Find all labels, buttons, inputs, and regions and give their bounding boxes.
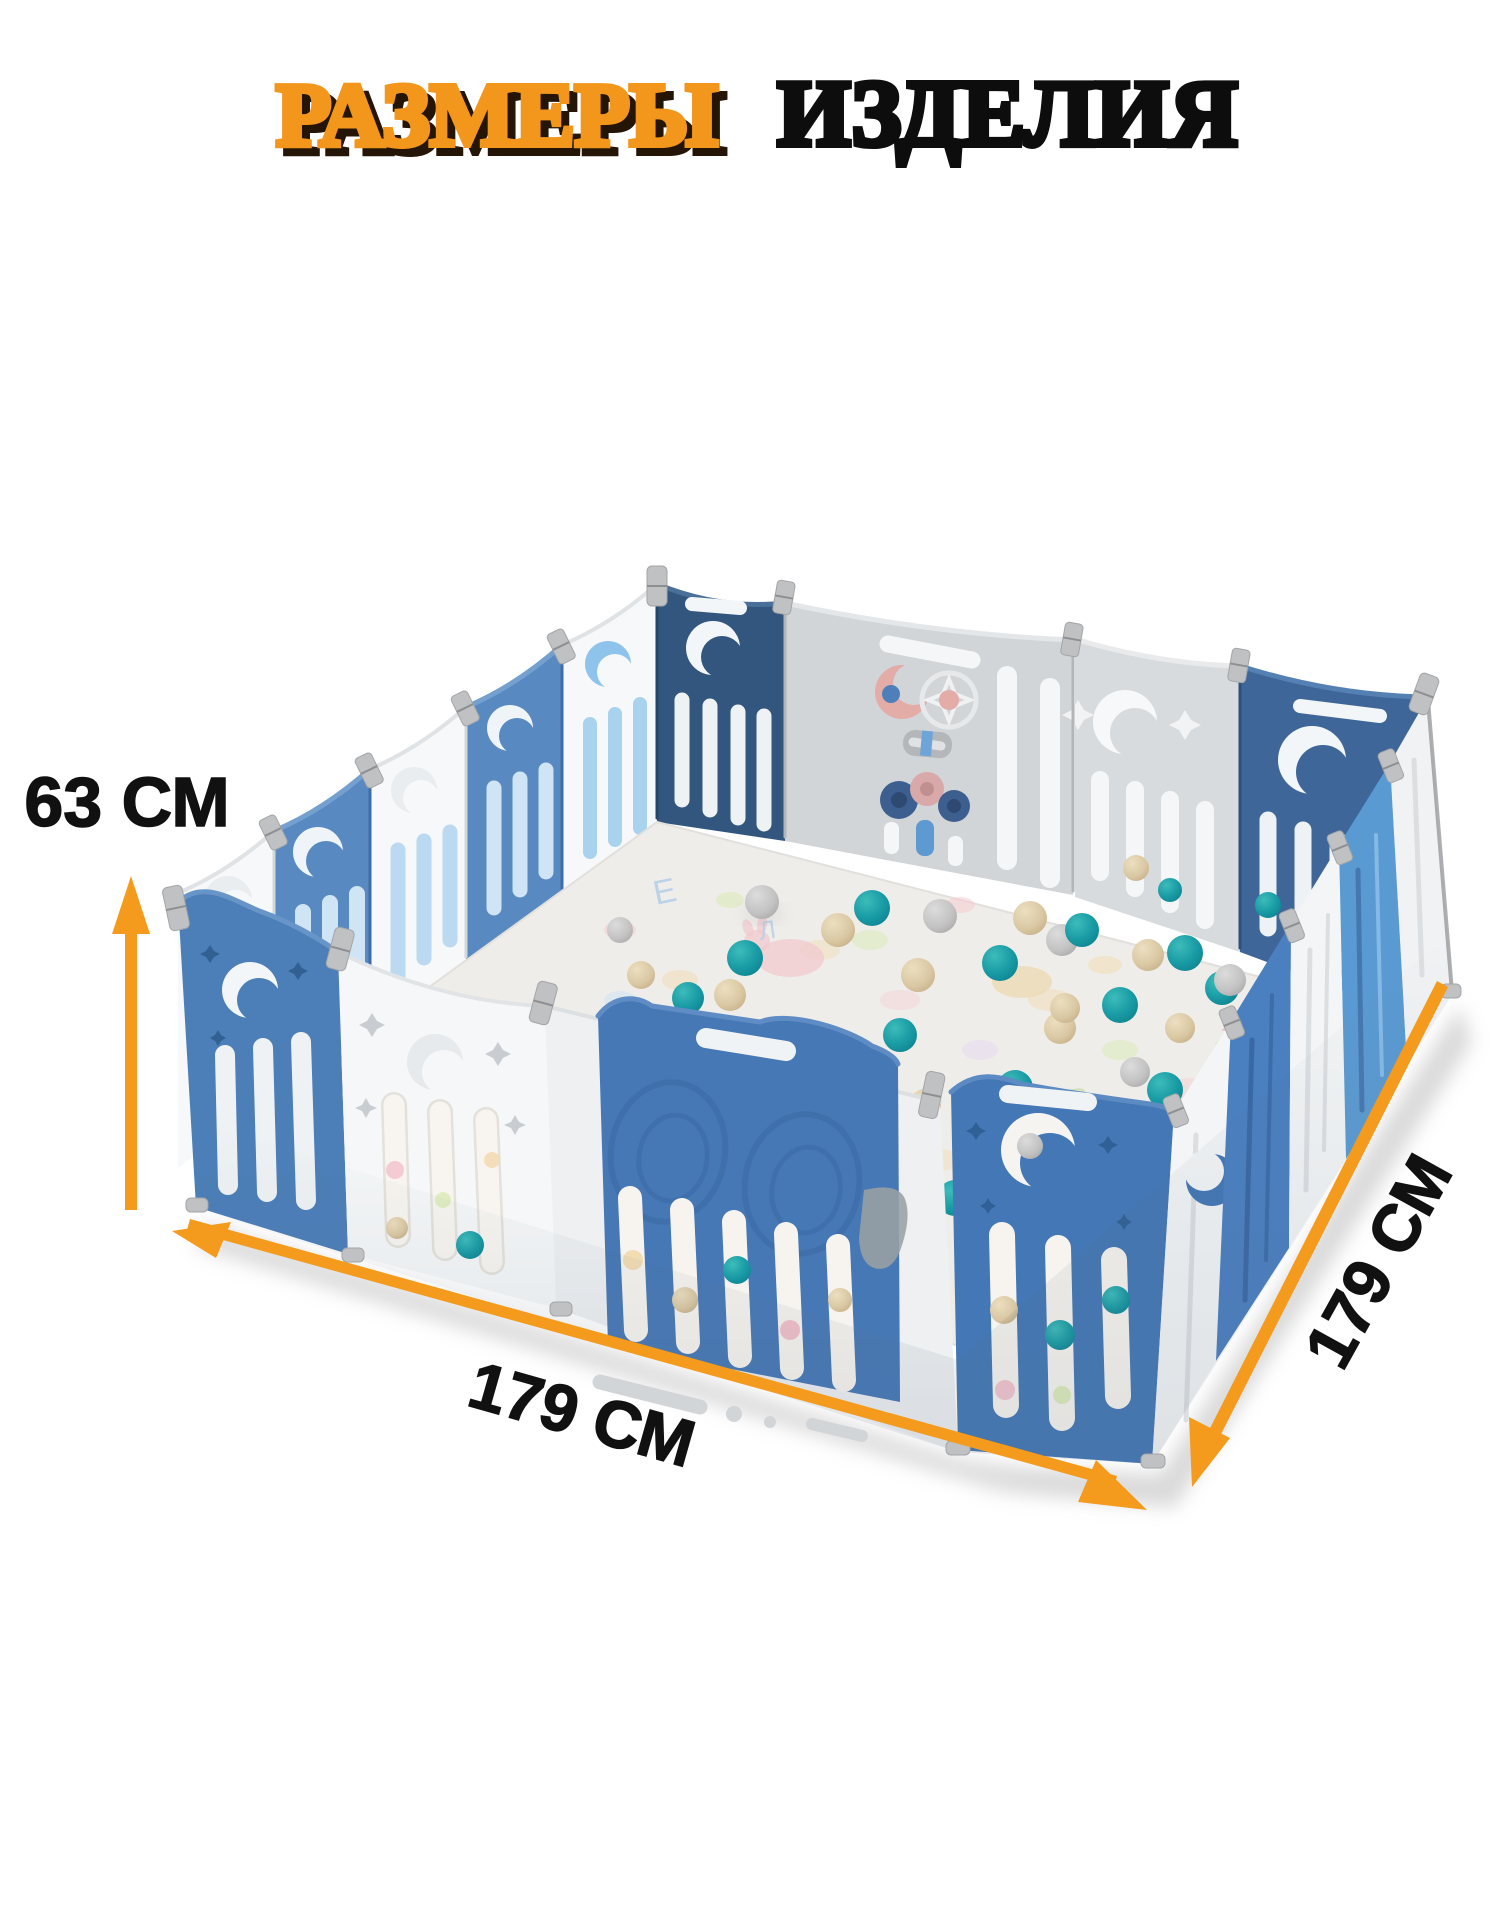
svg-text:РАЗМЕРЫ: РАЗМЕРЫ — [276, 66, 718, 165]
svg-text:63 СМ: 63 СМ — [24, 763, 229, 841]
svg-text:ИЗДЕЛИЯ: ИЗДЕЛИЯ — [777, 62, 1238, 166]
